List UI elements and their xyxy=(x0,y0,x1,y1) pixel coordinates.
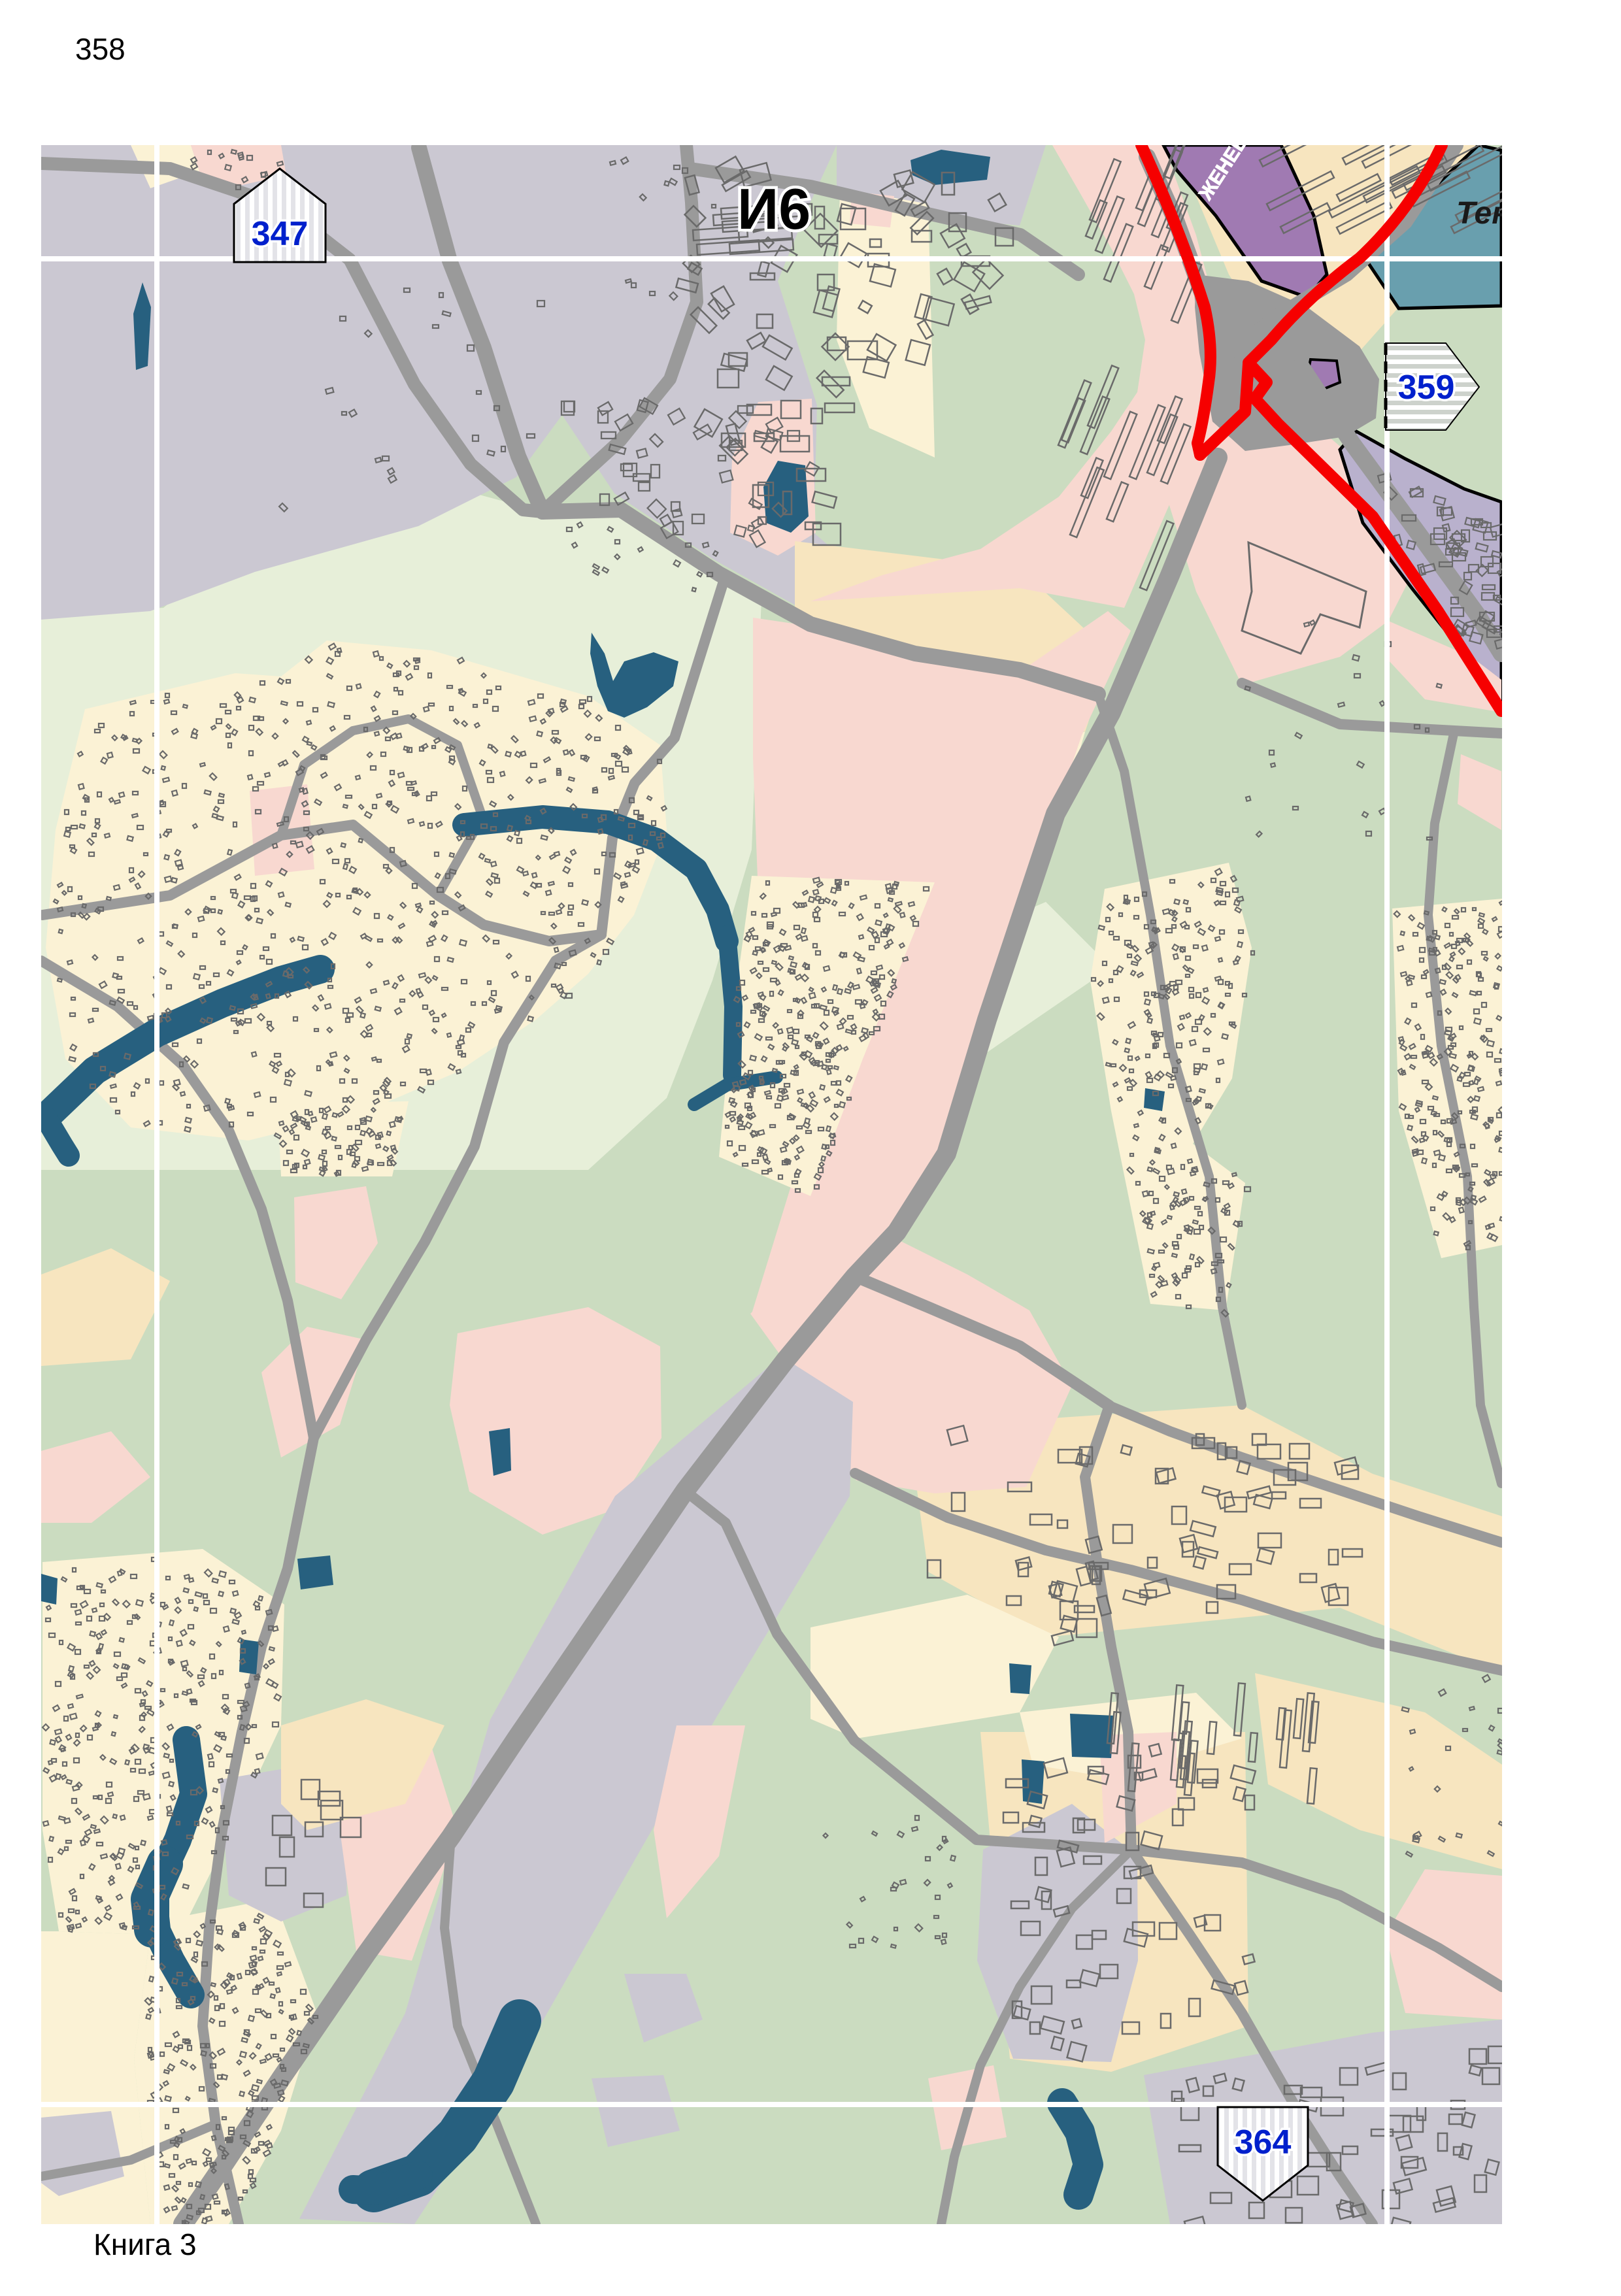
svg-text:347: 347 xyxy=(252,215,309,253)
svg-text:358: 358 xyxy=(75,32,125,66)
svg-text:И6: И6 xyxy=(737,176,811,241)
svg-text:364: 364 xyxy=(1235,2123,1292,2161)
svg-text:359: 359 xyxy=(1398,369,1455,407)
svg-text:Тен: Тен xyxy=(1456,196,1511,231)
svg-text:Книга 3: Книга 3 xyxy=(93,2227,197,2261)
